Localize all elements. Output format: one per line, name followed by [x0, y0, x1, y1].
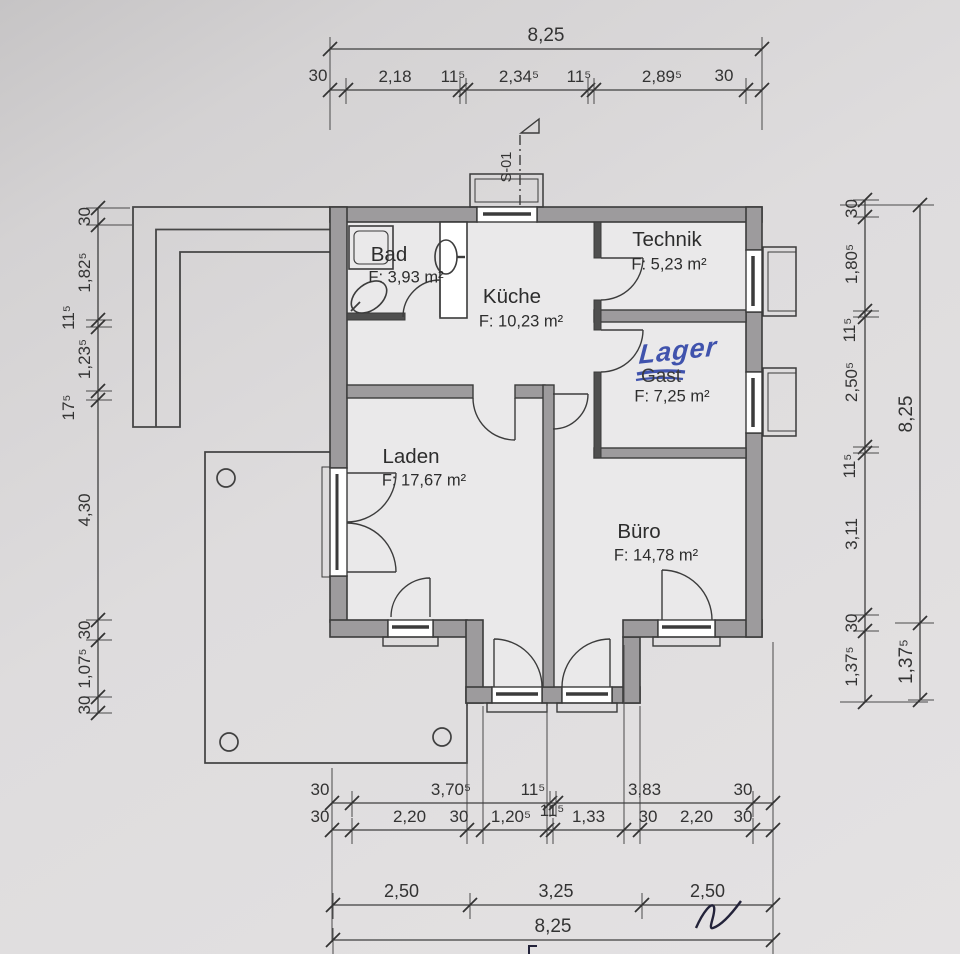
dim-label: 30	[734, 807, 753, 826]
wall	[347, 313, 405, 320]
dim-label: 30	[75, 696, 94, 715]
dim-label: 1,33	[572, 807, 605, 826]
dim-label: 3,11	[842, 518, 861, 550]
dim-label: 1,80⁵	[842, 244, 861, 284]
floor-plan: S-01 8,25302,1811⁵2,34⁵11⁵2,89⁵30301,82⁵…	[0, 0, 960, 954]
dim-label: 11⁵	[521, 780, 546, 799]
roller-box-inner	[768, 252, 796, 311]
dim-label: 11⁵	[840, 318, 859, 343]
door-sill	[487, 703, 547, 712]
dim-label: 2,18	[378, 67, 411, 86]
wall	[466, 687, 492, 703]
wall	[330, 620, 388, 637]
dim-label: 11⁵	[567, 67, 592, 86]
wall	[594, 300, 601, 330]
dim-label: 2,50⁵	[842, 362, 861, 402]
wall	[746, 312, 762, 372]
dim-label: 11⁵	[840, 454, 859, 479]
dim-label: 11⁵	[59, 305, 78, 330]
dim-label: 30	[734, 780, 753, 799]
dim-label: 1,23⁵	[75, 339, 94, 379]
canopy-outline	[133, 207, 330, 427]
wall	[433, 620, 467, 637]
dim-label: 1,37⁵	[896, 639, 917, 684]
dim-label: 11⁵	[540, 801, 565, 820]
dim-label: 2,20	[680, 807, 713, 826]
canopy-midline	[156, 230, 330, 428]
canopy	[133, 207, 330, 427]
dim-label: 30	[842, 199, 861, 218]
dim-label: 4,30	[75, 493, 94, 526]
door-sill	[653, 637, 720, 646]
dim-label: 17⁵	[59, 395, 78, 421]
wall	[594, 372, 601, 458]
section-flag-icon	[521, 119, 539, 133]
terrace-post	[433, 728, 451, 746]
dim-label: 1,37⁵	[842, 646, 861, 686]
roller-box-inner	[768, 373, 796, 431]
dim-label: 3,25	[538, 881, 573, 901]
terrace-post	[217, 469, 235, 487]
wall	[515, 385, 545, 398]
dim-label: 2,50	[690, 881, 725, 901]
door-sill	[383, 637, 438, 646]
dim-label: 8,25	[535, 916, 572, 937]
dim-label: 30	[75, 207, 94, 226]
wall	[543, 385, 554, 687]
wall	[594, 310, 746, 322]
dim-label: 30	[639, 807, 658, 826]
dim-label: 1,20⁵	[491, 807, 531, 826]
section-marker-label: S-01	[499, 152, 515, 183]
dim-label: 30	[842, 614, 861, 633]
dim-label: 30	[309, 66, 328, 85]
door-sill	[322, 467, 330, 577]
dim-label: 3,70⁵	[431, 780, 471, 799]
dim-label: 30	[450, 807, 469, 826]
dim-label: 2,20	[393, 807, 426, 826]
wall	[746, 433, 762, 637]
wall	[594, 222, 601, 258]
door-sill	[557, 703, 617, 712]
wall	[537, 207, 762, 222]
wall	[746, 207, 762, 250]
dim-label: 30	[311, 807, 330, 826]
wall	[623, 620, 658, 637]
dim-label: 2,89⁵	[642, 67, 682, 86]
terrace-post	[220, 733, 238, 751]
dim-label: 30	[715, 66, 734, 85]
dim-label: 1,07⁵	[75, 648, 94, 688]
dim-label: 30	[311, 780, 330, 799]
dim-label: 3,83	[628, 780, 661, 799]
wall	[347, 385, 473, 398]
wall	[330, 207, 477, 222]
dim-label: 2,50	[384, 881, 419, 901]
dim-label: 11⁵	[441, 67, 466, 86]
dim-label: 8,25	[528, 25, 565, 46]
dim-label: 1,82⁵	[75, 252, 94, 292]
section-marker: S-01	[499, 119, 539, 207]
wall	[623, 637, 640, 703]
wall	[330, 576, 347, 622]
dim-label: 2,34⁵	[499, 67, 539, 86]
wall	[542, 687, 562, 703]
floor-plan-drawing: S-01 8,25302,1811⁵2,34⁵11⁵2,89⁵30301,82⁵…	[0, 0, 960, 954]
dim-label: 8,25	[896, 396, 917, 433]
dim-label: 30	[75, 621, 94, 640]
wall	[330, 207, 347, 468]
wall	[594, 448, 746, 458]
